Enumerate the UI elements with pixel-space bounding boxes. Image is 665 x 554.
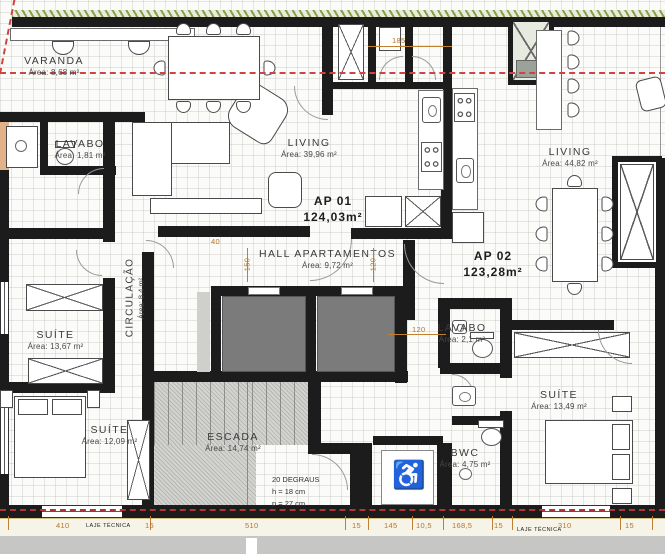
wall [211, 286, 221, 383]
room-name: VARANDA [8, 55, 100, 67]
room-label-suite3: SUÍTE Área: 13,49 m² [518, 389, 600, 411]
kitchen-sink [456, 158, 474, 183]
pillow [612, 454, 630, 480]
room-area: Área: 13,49 m² [518, 402, 600, 411]
stair-flight [154, 445, 256, 505]
room-name: CIRCULAÇÃO [125, 258, 136, 338]
room-area: Área: 14,74 m² [183, 444, 283, 453]
apartment-name: AP 02 [474, 249, 512, 263]
dimension-tick [345, 516, 346, 530]
room-area: Área: 8,4 m² [137, 278, 146, 319]
dimension-tick [368, 516, 369, 530]
chair [536, 197, 548, 212]
dimension-label: 10,5 [416, 521, 432, 530]
room-area: Área: 12,09 m² [62, 437, 157, 446]
room-area-circulacao: Área: 8,4 m² [137, 259, 146, 339]
stair-note: 20 DEGRAUS h = 18 cm p = 27 cm [272, 474, 320, 510]
nightstand [612, 488, 632, 504]
apartment-name: AP 01 [314, 194, 352, 208]
apartment-label-ap02: AP 02 123,28m² [448, 249, 538, 280]
wall [142, 371, 408, 382]
laje-tecnica-label: LAJE TÉCNICA [86, 523, 131, 529]
wall [333, 82, 445, 89]
dimension-label: 168,5 [452, 521, 472, 530]
wall [158, 226, 310, 237]
dimension-tick [652, 516, 653, 530]
wall [373, 436, 443, 445]
kitchen-sink [422, 97, 441, 123]
room-area: Área: 2,1 m² [425, 335, 499, 344]
room-area: Área: 13,67 m² [8, 342, 103, 351]
dimension-label: 15 [625, 521, 634, 530]
dimension-tick [8, 516, 9, 530]
apartment-area: 124,03m² [303, 210, 362, 224]
dimension-label: 150 [243, 246, 252, 284]
wall [8, 228, 104, 239]
floor-plan-canvas: ♿ VARANDA Área: 8,68 m² LAVABO Área: 1,8… [0, 0, 665, 554]
elevator-shaft [317, 296, 395, 372]
chair [567, 175, 582, 187]
room-label-escada: ESCADA Área: 14,74 m² [183, 431, 283, 453]
dimension-label: 120 [412, 325, 425, 334]
dimension-label: 15 [145, 521, 154, 530]
room-label-hall: HALL APARTAMENTOS Área: 9,72 m² [245, 248, 410, 270]
dimension-label: 120 [369, 246, 378, 284]
elevator-shaft [222, 296, 306, 372]
wall [507, 320, 614, 330]
room-area: Área: 1,81 m² [40, 151, 120, 160]
wall [306, 286, 316, 383]
wardrobe [620, 164, 654, 260]
room-name: BWC [430, 447, 500, 459]
dimension-line [368, 46, 452, 47]
stove [421, 142, 442, 172]
room-name: SUÍTE [8, 329, 103, 341]
wall [351, 228, 452, 239]
dimension-tick [443, 516, 444, 530]
room-area: Área: 39,96 m² [263, 150, 355, 159]
stair-note-line3: p = 27 cm [272, 499, 305, 508]
stair-note-line2: h = 18 cm [272, 487, 305, 496]
dimension-label: 145 [384, 521, 397, 530]
floor-drain [459, 468, 472, 480]
apartment-label-ap01: AP 01 124,03m² [283, 194, 383, 225]
room-name: SUÍTE [518, 389, 600, 401]
cabinet [452, 212, 484, 243]
window [0, 398, 9, 474]
room-label-living2: LIVING Área: 44,82 m² [524, 146, 616, 168]
room-area: Área: 4,75 m² [430, 460, 500, 469]
window [0, 282, 9, 334]
room-area: Área: 8,68 m² [8, 68, 100, 77]
nightstand [0, 390, 13, 408]
room-label-suite1: SUÍTE Área: 13,67 m² [8, 329, 103, 351]
room-name: HALL APARTAMENTOS [245, 248, 410, 260]
window [542, 505, 610, 518]
wall [350, 443, 372, 518]
window [42, 505, 122, 518]
dimension-label: 15 [494, 521, 503, 530]
room-label-suite2: SUÍTE Área: 12,09 m² [62, 424, 157, 446]
shower-drain [15, 140, 27, 152]
chair [206, 23, 221, 35]
room-label-circulacao: CIRCULAÇÃO [125, 255, 136, 341]
elevator-door [248, 287, 280, 295]
dining-table [168, 36, 260, 100]
room-name: ESCADA [183, 431, 283, 443]
dimension-label: 15 [352, 521, 361, 530]
wall [0, 112, 145, 122]
tv-sideboard [150, 198, 262, 214]
dimension-line [388, 334, 446, 335]
room-label-bwc: BWC Área: 4,75 m² [430, 447, 500, 469]
dimension-label: 510 [245, 521, 258, 530]
nightstand [87, 390, 100, 408]
apartment-area: 123,28m² [463, 265, 522, 279]
room-label-varanda: VARANDA Área: 8,68 m² [8, 55, 100, 77]
dimension-label: 185 [392, 36, 405, 45]
room-name: LIVING [263, 137, 355, 149]
chair [536, 227, 548, 242]
wall [440, 363, 507, 374]
stair-note-line1: 20 DEGRAUS [272, 475, 320, 484]
wall [103, 278, 115, 390]
pillow [52, 399, 82, 415]
room-label-lavabo1: LAVABO Área: 1,81 m² [40, 138, 120, 160]
room-name: SUÍTE [62, 424, 157, 436]
dimension-label: 410 [56, 521, 69, 530]
stove [454, 93, 475, 122]
wall [368, 17, 376, 85]
dimension-label: 40 [211, 237, 220, 246]
toilet [481, 428, 502, 446]
wardrobe [26, 284, 103, 311]
elevator-door [341, 287, 373, 295]
room-area: Área: 9,72 m² [245, 261, 410, 270]
dimension-tick [492, 516, 493, 530]
washbasin [452, 386, 476, 406]
room-name: LAVABO [425, 322, 499, 334]
wardrobe [28, 358, 103, 384]
dimension-label: 310 [558, 521, 571, 530]
dimension-tick [620, 516, 621, 530]
chair [176, 23, 191, 35]
sofa-chaise [132, 122, 172, 196]
room-area: Área: 44,82 m² [524, 159, 616, 168]
pillow [612, 424, 630, 450]
dimension-tick [412, 516, 413, 530]
dining-table [552, 188, 598, 282]
wall [500, 298, 512, 378]
nightstand [612, 396, 632, 412]
room-label-lavabo2: LAVABO Área: 2,1 m² [425, 322, 499, 344]
dimension-tick [512, 516, 513, 530]
exterior-ground-band [0, 536, 665, 554]
centerline [0, 509, 665, 511]
chair [236, 23, 251, 35]
sideboard [536, 30, 562, 130]
laje-tecnica-label: LAJE TÉCNICA [517, 527, 562, 533]
room-name: LAVABO [40, 138, 120, 150]
pillow [18, 399, 48, 415]
wall [308, 380, 321, 450]
shaft-finish-panel [197, 292, 210, 372]
ground-marker [246, 538, 257, 554]
wheelchair-icon: ♿ [392, 462, 426, 489]
room-label-living1: LIVING Área: 39,96 m² [263, 137, 355, 159]
room-name: LIVING [524, 146, 616, 158]
pantry-cabinet [405, 196, 441, 227]
toilet-tank [478, 420, 504, 428]
